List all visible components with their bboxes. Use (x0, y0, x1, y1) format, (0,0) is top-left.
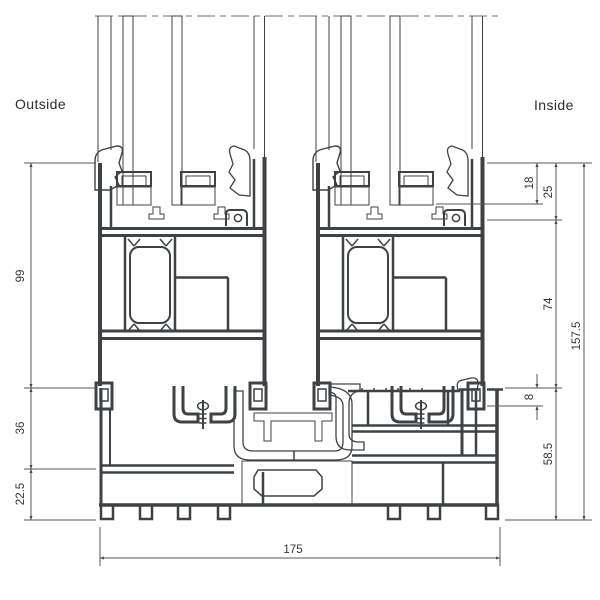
track-rail (254, 413, 332, 441)
dim-8: 8 (524, 394, 536, 400)
dim-74: 74 (543, 297, 555, 310)
sill-foot (140, 505, 152, 519)
sill-foot (101, 505, 113, 519)
dim-22-5: 22.5 (15, 483, 27, 505)
sill-foot (428, 505, 440, 519)
dim-157-5: 157.5 (571, 322, 583, 351)
sill-frame (99, 378, 503, 519)
sill-right-top (352, 456, 496, 463)
inner-sash (313, 16, 484, 429)
sill-foot (218, 505, 230, 519)
section-drawing: 99 36 22.5 18 25 74 8 58.5 157.5 175 Out… (0, 0, 600, 600)
dim-18: 18 (524, 177, 536, 190)
dim-25: 25 (543, 186, 555, 199)
dim-175: 175 (283, 544, 302, 556)
sill-foot (388, 505, 400, 519)
center-track (234, 387, 352, 461)
interior-trim (330, 384, 364, 450)
dim-36: 36 (15, 422, 27, 435)
sill-left-top (100, 466, 234, 473)
inside-label: Inside (534, 97, 574, 113)
dim-99: 99 (15, 270, 27, 283)
sill-foot (178, 505, 190, 519)
outside-label: Outside (15, 96, 66, 112)
outer-sash (95, 16, 266, 429)
sill-foot (486, 505, 498, 519)
technical-drawing-canvas: 99 36 22.5 18 25 74 8 58.5 157.5 175 Out… (0, 0, 600, 600)
dim-58-5: 58.5 (543, 443, 555, 465)
